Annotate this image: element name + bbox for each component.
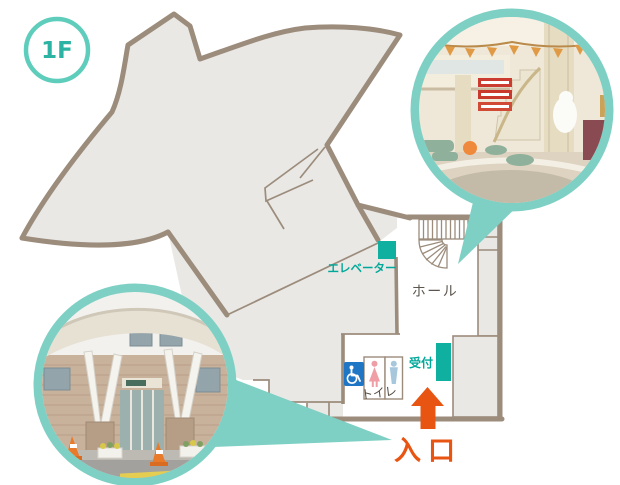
- reception-label: 受付: [409, 355, 433, 370]
- elevator-label: エレベーター: [328, 261, 397, 275]
- entrance-label: 入口: [394, 436, 462, 467]
- elevator-marker: [378, 241, 396, 259]
- reception-marker: [436, 343, 451, 381]
- floor-map-1f: エレベーター ホール 受付: [0, 0, 620, 485]
- wheelchair-icon: [344, 362, 364, 386]
- side-room-large: [453, 336, 498, 417]
- floor-badge: 1F: [26, 19, 88, 81]
- floor-badge-label: 1F: [41, 38, 73, 64]
- hall-label: ホール: [412, 284, 459, 300]
